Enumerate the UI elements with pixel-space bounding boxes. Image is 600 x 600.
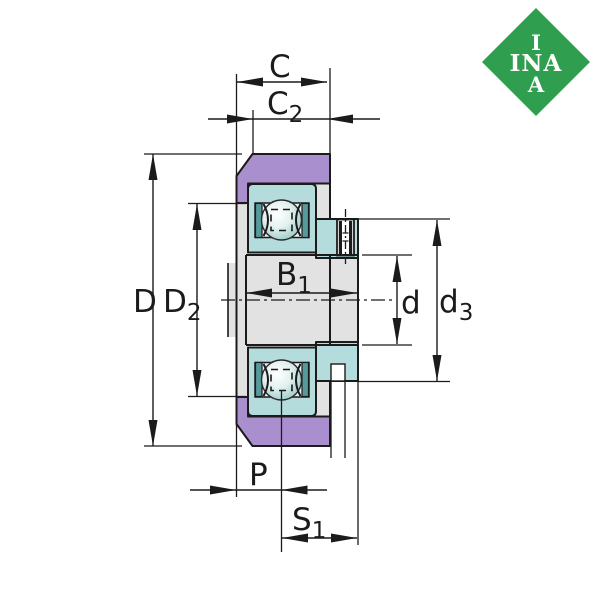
- ball-raceway-top: [255, 200, 309, 240]
- label-C: C: [269, 49, 291, 85]
- label-D2: D2: [163, 284, 202, 326]
- label-D: D: [133, 284, 157, 320]
- seal-right: [302, 204, 309, 238]
- technical-drawing-canvas: C C2 D D2 B1 d d3 P S1 I INA A: [0, 0, 600, 600]
- label-d: d: [401, 285, 421, 321]
- label-P: P: [249, 457, 268, 493]
- label-C2: C2: [267, 86, 303, 128]
- label-d3: d3: [439, 284, 473, 326]
- label-S1: S1: [292, 502, 326, 544]
- ina-logo-icon: I INA A: [482, 8, 590, 116]
- bearing-cross-section-drawing: C C2 D D2 B1 d d3 P S1 I INA A: [0, 0, 600, 600]
- seal-right: [302, 363, 309, 397]
- logo-row-3: A: [527, 72, 545, 97]
- eccentric-recess: [331, 364, 345, 381]
- dimension-labels: C C2 D D2 B1 d d3 P S1: [133, 49, 473, 544]
